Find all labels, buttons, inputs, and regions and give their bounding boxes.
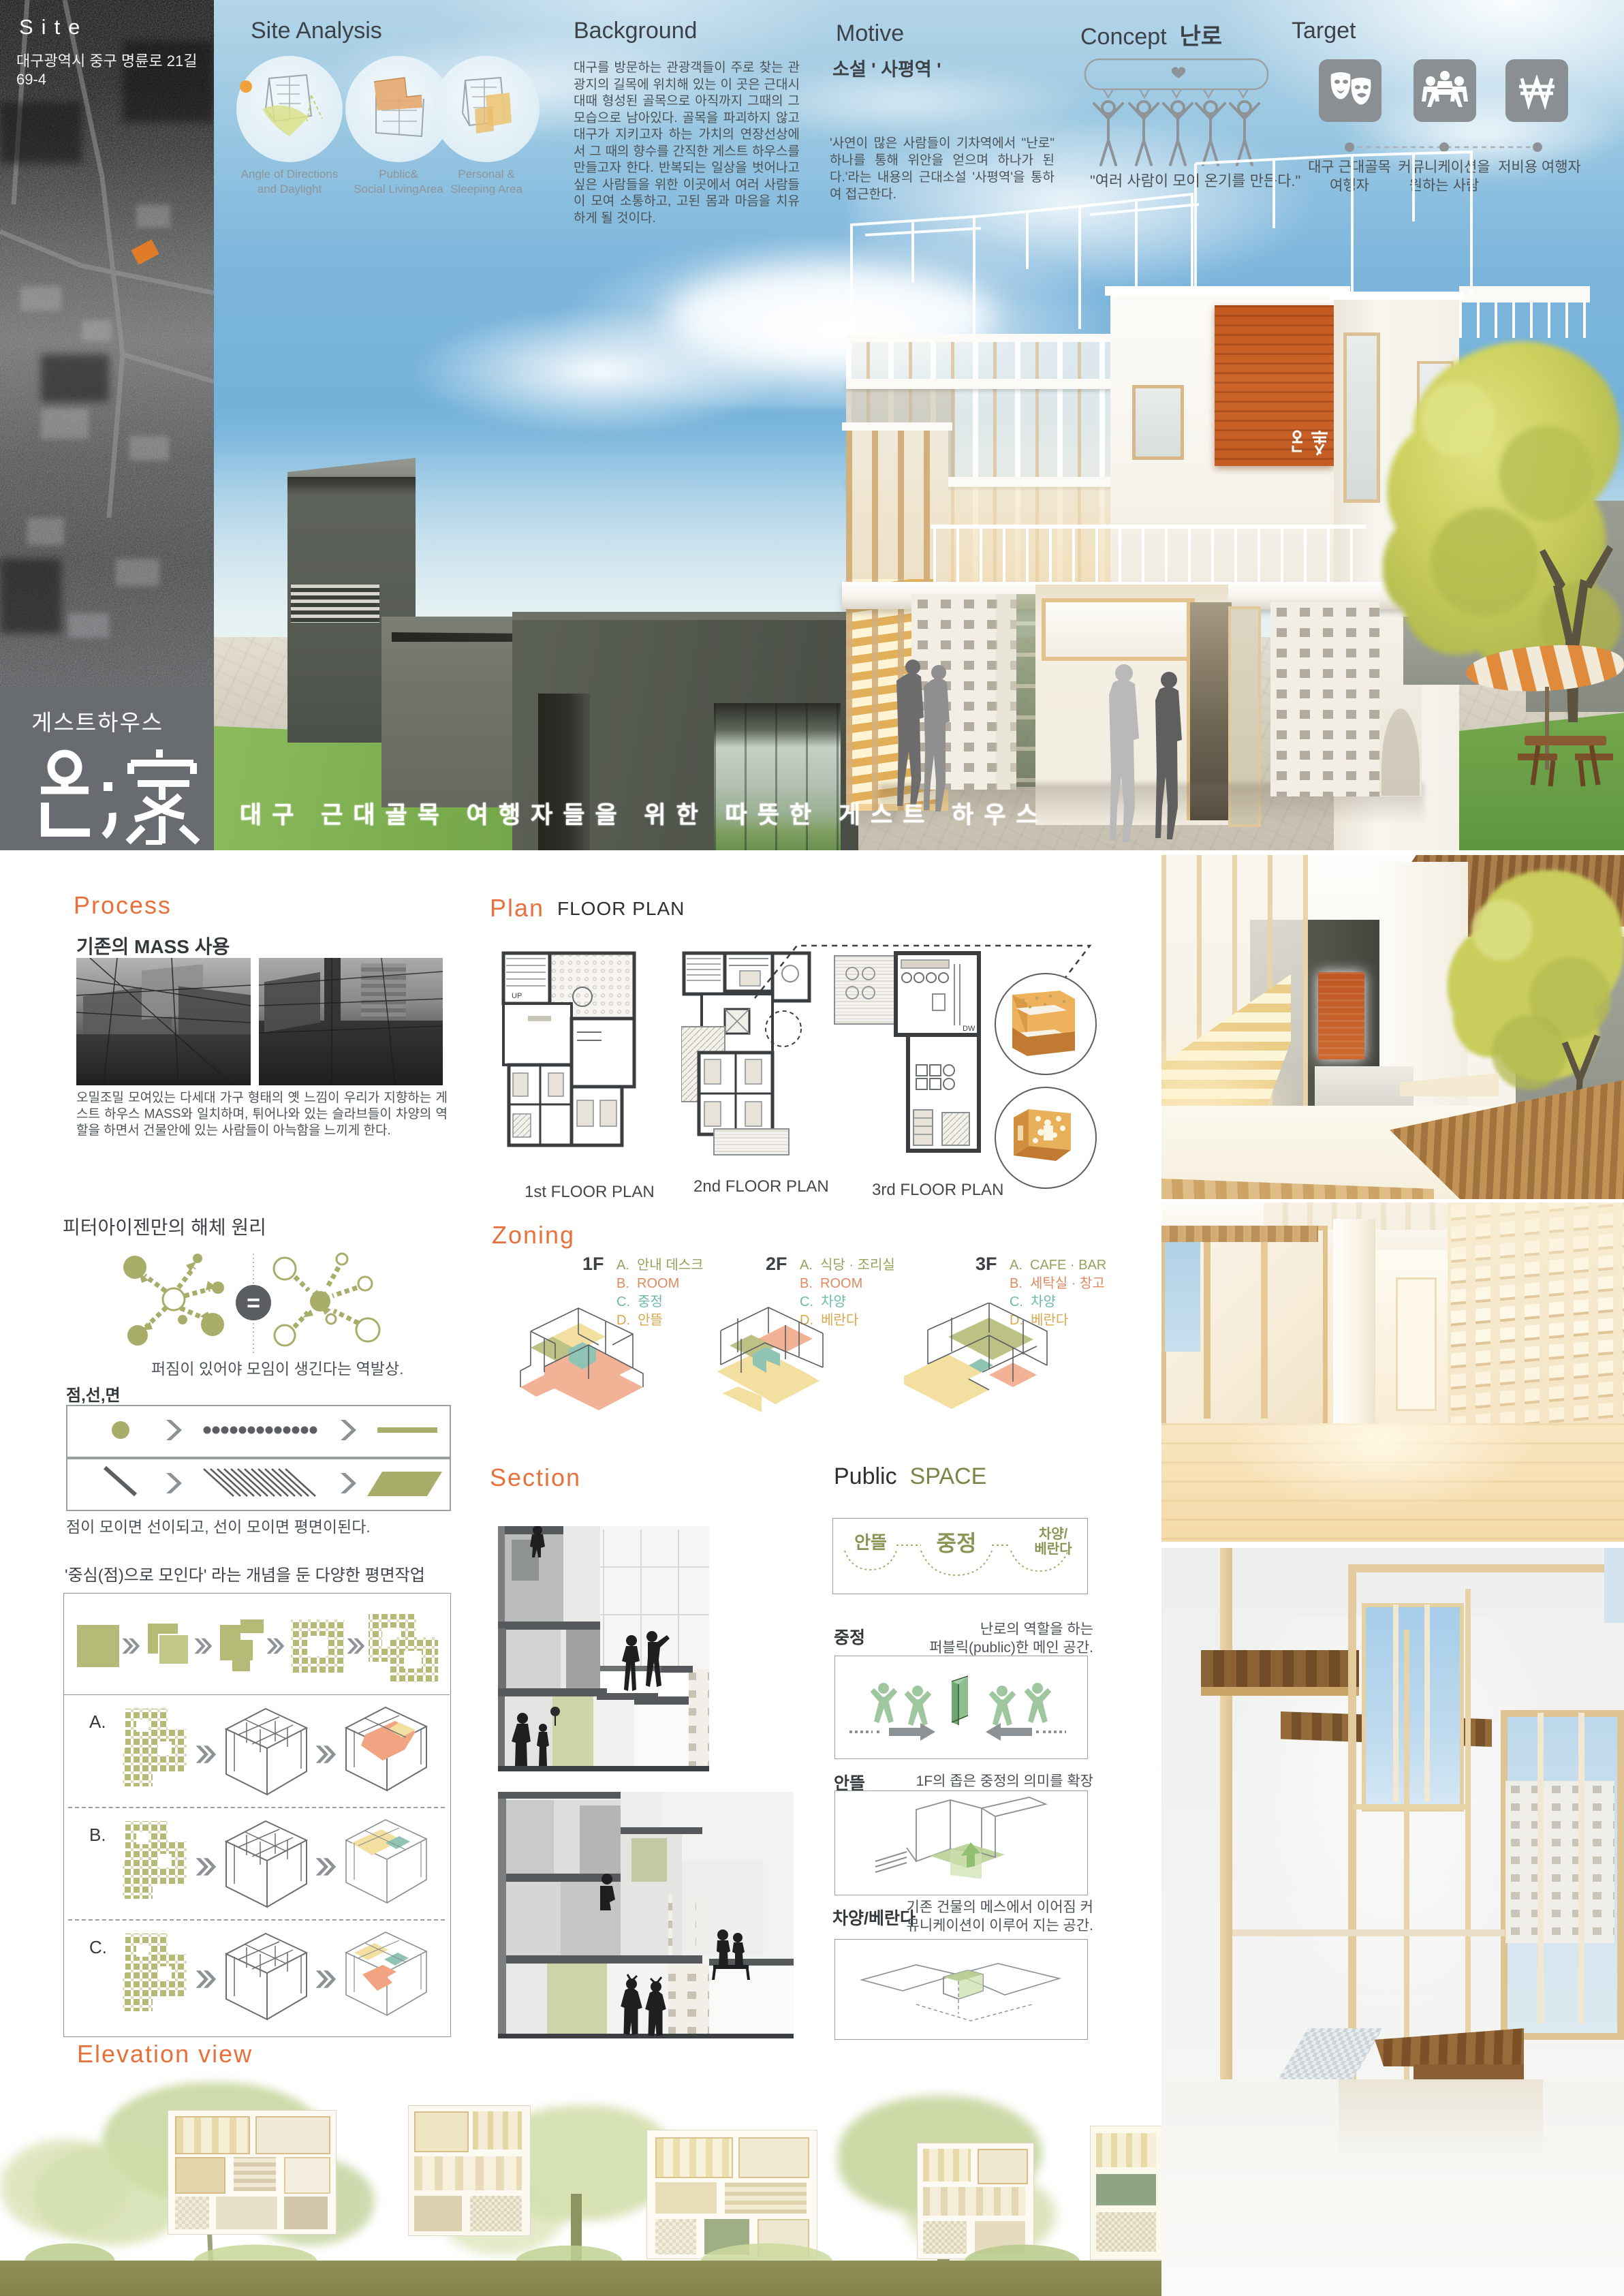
svg-text:UP: UP	[512, 992, 522, 1000]
svg-text:베란다: 베란다	[1034, 1541, 1072, 1557]
svg-text:중정: 중정	[937, 1531, 977, 1555]
svg-text:차양/: 차양/	[1039, 1526, 1068, 1542]
svg-text:=: =	[247, 1290, 260, 1316]
svg-text:안뜰: 안뜰	[854, 1532, 887, 1553]
